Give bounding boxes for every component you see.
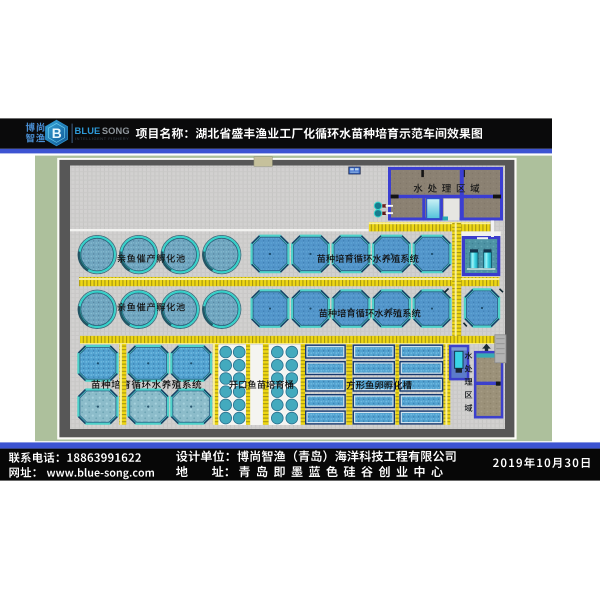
svg-text:B: B xyxy=(52,126,62,141)
svg-text:BLUESONG: BLUESONG xyxy=(75,126,130,136)
svg-text:INTELLIGENT FISHERY: INTELLIGENT FISHERY xyxy=(75,136,129,141)
